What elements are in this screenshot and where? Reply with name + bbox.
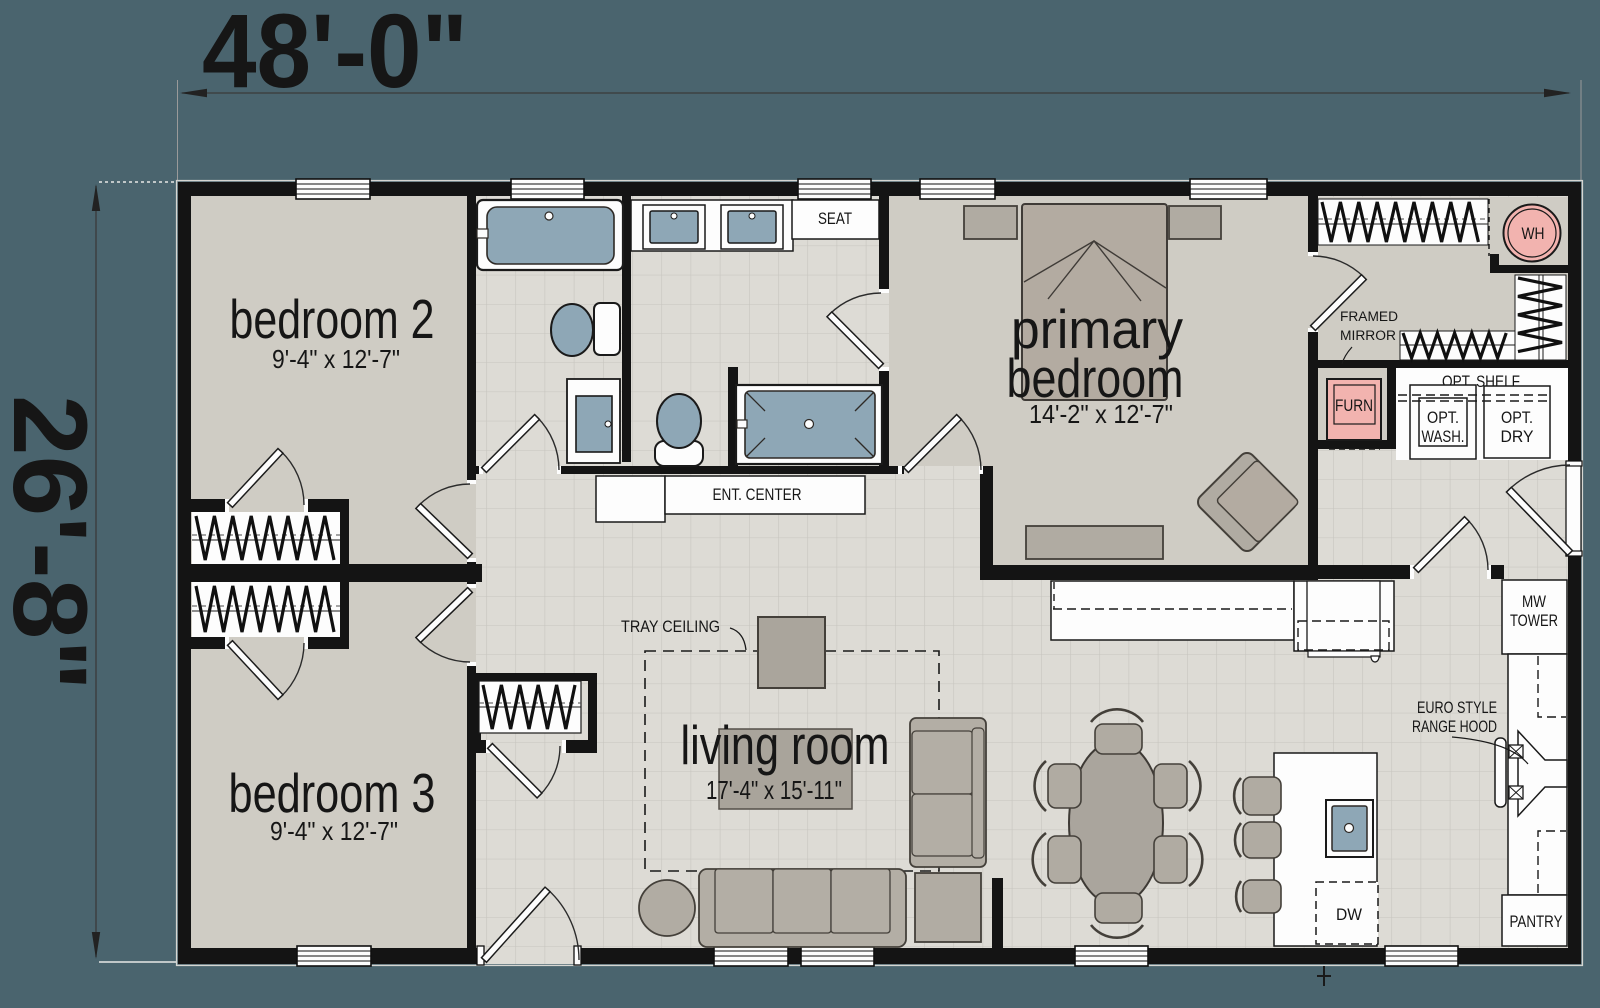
svg-text:TOWER: TOWER: [1510, 612, 1558, 630]
svg-text:TRAY CEILING: TRAY CEILING: [621, 618, 720, 636]
svg-text:MIRROR: MIRROR: [1340, 328, 1396, 343]
svg-text:living room: living room: [681, 714, 890, 776]
svg-text:FURN: FURN: [1335, 397, 1373, 415]
svg-text:26'-8": 26'-8": [0, 395, 108, 691]
svg-text:DW: DW: [1336, 906, 1362, 924]
svg-text:bedroom 3: bedroom 3: [229, 762, 436, 824]
svg-text:14'-2" x 12'-7": 14'-2" x 12'-7": [1029, 399, 1173, 429]
svg-text:bedroom 2: bedroom 2: [230, 288, 435, 350]
svg-text:DRY: DRY: [1501, 428, 1534, 446]
svg-text:EURO STYLE: EURO STYLE: [1417, 699, 1497, 717]
svg-text:9'-4" x 12'-7": 9'-4" x 12'-7": [270, 816, 398, 846]
svg-text:ENT. CENTER: ENT. CENTER: [713, 486, 802, 504]
svg-text:WASH.: WASH.: [1422, 428, 1465, 446]
svg-text:9'-4" x 12'-7": 9'-4" x 12'-7": [272, 344, 400, 374]
svg-text:OPT.: OPT.: [1501, 409, 1533, 427]
svg-text:SEAT: SEAT: [818, 210, 852, 228]
svg-text:FRAMED: FRAMED: [1340, 309, 1398, 324]
svg-text:MW: MW: [1522, 593, 1546, 611]
svg-text:OPT.: OPT.: [1427, 409, 1459, 427]
svg-text:WH: WH: [1522, 225, 1545, 243]
svg-text:PANTRY: PANTRY: [1510, 913, 1563, 931]
svg-text:RANGE HOOD: RANGE HOOD: [1412, 718, 1497, 736]
svg-text:17'-4" x 15'-11": 17'-4" x 15'-11": [706, 775, 842, 805]
